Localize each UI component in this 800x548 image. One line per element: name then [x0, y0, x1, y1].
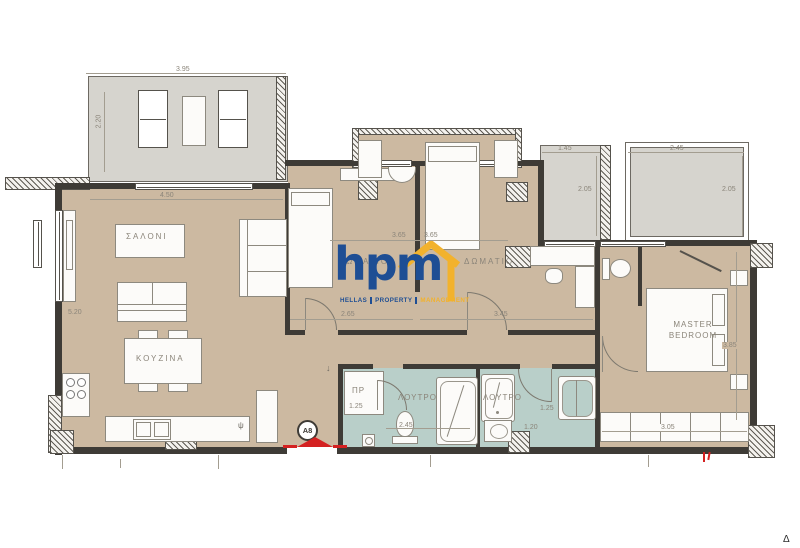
- sink-basin-2: [154, 422, 169, 437]
- bathtub-1-inner: [440, 381, 476, 442]
- wall-right: [750, 240, 757, 455]
- window-living-top: [135, 183, 253, 190]
- master-toilet-bowl: [610, 259, 631, 278]
- sink-basin-1: [136, 422, 151, 437]
- sofa-main-cushion-2: [247, 271, 287, 272]
- bathtub-2-line: [576, 380, 577, 416]
- dimline-master-w: [602, 431, 747, 432]
- wall-hall-2: [338, 330, 415, 335]
- bath1-fixture-knob: [365, 437, 373, 445]
- tick-1: [62, 455, 63, 469]
- dim-master-h: 3.85: [722, 342, 738, 349]
- window-living-left: [55, 210, 63, 302]
- entrance-redbar-right: [333, 445, 347, 448]
- logo-tagline: HELLASPROPERTYMANAGEMENT: [340, 297, 469, 304]
- logo-separator-2: [415, 297, 417, 304]
- balcony-1-wall-hatch: [600, 145, 611, 240]
- chair-1: [138, 330, 158, 339]
- wardrobe-bay-right: [494, 140, 518, 178]
- desk-bedroom2: [530, 246, 595, 266]
- logo-word-3: MANAGEMENT: [420, 297, 469, 304]
- tick-5: [648, 455, 649, 467]
- window-exterior-ledge: [33, 220, 42, 268]
- entrance-triangle: [297, 437, 333, 447]
- column-bottom-left: [50, 430, 74, 454]
- tick-2: [120, 459, 121, 468]
- dim-bath2-w: 1.25: [540, 405, 554, 412]
- dim-bedroom1-w: 2.65: [341, 311, 355, 318]
- toilet1-tank: [392, 436, 418, 444]
- dim-master-w: 3.05: [659, 424, 677, 431]
- column-bottom-right: [748, 425, 775, 458]
- dim-balcony1-w: 1.45: [558, 145, 572, 152]
- red-tick-1: [703, 452, 705, 462]
- wall-hall-4: [508, 330, 600, 335]
- dimline-terrace-w: [86, 73, 286, 74]
- column-bedroom1: [358, 180, 378, 200]
- shower-2-drain: [496, 411, 499, 414]
- logo-text: hpm: [334, 241, 442, 287]
- terrace-skylight-2: [182, 96, 206, 146]
- label-closet-pr: ΠΡ: [352, 386, 365, 395]
- door-bedroom1-leaf: [305, 298, 306, 330]
- dim-terrace-w: 3.95: [176, 66, 190, 73]
- sheet-mark: Δ: [783, 534, 790, 545]
- master-nightstand-2: [730, 374, 748, 390]
- dimline-balcony1-w: [542, 152, 600, 153]
- dimline-balcony2-w: [628, 152, 744, 153]
- dim-closet-w: 1.25: [349, 403, 363, 410]
- label-living: ΣΑΛΟΝΙ: [126, 232, 168, 241]
- wall-hall-3: [415, 330, 467, 335]
- tv: [66, 220, 73, 270]
- bathtub-2-inner: [562, 380, 593, 417]
- watermark-logo: hpm HELLASPROPERTYMANAGEMENT: [334, 241, 474, 309]
- burner-1: [66, 378, 75, 387]
- floor-plan: ψ ↓ 3.95 2.20: [0, 0, 800, 548]
- bath2-sink-bowl: [490, 424, 508, 439]
- dim-living-w: 4.50: [160, 192, 174, 199]
- wall-hall-1: [285, 330, 305, 335]
- dimline-living-w: [90, 199, 283, 200]
- burner-2: [77, 378, 86, 387]
- desk-chair: [545, 268, 563, 284]
- red-tick-2: [707, 452, 710, 460]
- dim-balcony2-d: 2.05: [722, 186, 736, 193]
- dim-bath1-w: 2.45: [399, 422, 413, 429]
- wall-bath-top-1: [338, 364, 373, 369]
- sofa-cushion-divider: [152, 282, 153, 304]
- entrance-arrow: ↓: [326, 363, 331, 373]
- door-bath1-leaf: [377, 380, 378, 410]
- dim-balcony1-d: 2.05: [578, 186, 592, 193]
- sofa-line-1: [117, 304, 187, 305]
- chair-2: [168, 330, 188, 339]
- desk-return-bedroom2: [575, 266, 595, 308]
- window-bay-left: [380, 160, 412, 167]
- terrace-skylight-3: [218, 90, 248, 148]
- dimline-balcony2-d: [742, 156, 743, 236]
- entrance-redbar-left: [283, 445, 297, 448]
- dimline-bedroom1-w: [290, 319, 413, 320]
- kitchen-counter: [105, 416, 250, 442]
- tick-4: [430, 455, 431, 467]
- dimline-balcony1-d: [596, 156, 597, 236]
- master-nightstand-1: [730, 270, 748, 286]
- sofa-main-back: [247, 219, 248, 297]
- burner-3: [66, 390, 75, 399]
- living-room-rug: [115, 224, 185, 258]
- sofa-line-2: [117, 310, 187, 311]
- dimline-terrace-h: [104, 92, 105, 172]
- dimline-master-h: [736, 252, 737, 420]
- chair-3: [138, 383, 158, 392]
- wall-bath-top-2: [403, 364, 520, 369]
- logo-word-1: HELLAS: [340, 297, 367, 304]
- dim-bedroom2-w: 3.45: [494, 311, 508, 318]
- unit-marker-text: A8: [303, 426, 313, 435]
- wall-bath-top-3: [552, 364, 600, 369]
- wall-master-nook: [638, 246, 642, 306]
- window-master-top: [600, 241, 666, 247]
- dimline-bedroom2-w: [420, 319, 593, 320]
- logo-word-2: PROPERTY: [375, 297, 412, 304]
- dim-living-h: 5.20: [68, 309, 82, 316]
- label-bath1: ΛΟΥΤΡΟ: [398, 393, 437, 402]
- wall-top-bedroom1: [285, 160, 355, 166]
- burner-4: [77, 390, 86, 399]
- master-toilet-tank: [602, 258, 610, 280]
- chair-4: [168, 383, 188, 392]
- dim-bath2-b: 1.20: [524, 424, 538, 431]
- label-bath2: ΛΟΥΤΡΟ: [483, 393, 522, 402]
- wall-step-balcony1: [538, 160, 544, 246]
- label-master-line2: BEDROOM: [662, 331, 724, 340]
- door-bath2-leaf: [551, 369, 552, 402]
- dim-terrace-h: 2.20: [95, 115, 102, 129]
- bay-wall-top: [352, 128, 522, 135]
- dim-balcony2-w: 2.45: [670, 145, 684, 152]
- wall-bottom-right: [337, 447, 757, 454]
- wardrobe-bay-left: [358, 140, 382, 178]
- tick-3: [218, 455, 219, 469]
- column-top-right: [750, 243, 773, 268]
- label-kitchen: ΚΟΥΖΙΝΑ: [136, 354, 185, 363]
- terrace-skylight-1: [138, 90, 168, 148]
- sofa-main-cushion-1: [247, 245, 287, 246]
- fridge-mark: ψ: [238, 421, 244, 430]
- logo-separator-1: [370, 297, 372, 304]
- pillow-bedroom2: [428, 146, 477, 162]
- door-master-leaf: [602, 336, 603, 372]
- pillow-bedroom1: [291, 192, 330, 206]
- fridge-cabinet: [256, 390, 278, 443]
- column-bedroom2: [506, 182, 528, 202]
- wall-bedroom2-master: [595, 246, 600, 333]
- label-master-line1: MASTER: [662, 320, 724, 329]
- wall-entry-bath1: [338, 364, 343, 447]
